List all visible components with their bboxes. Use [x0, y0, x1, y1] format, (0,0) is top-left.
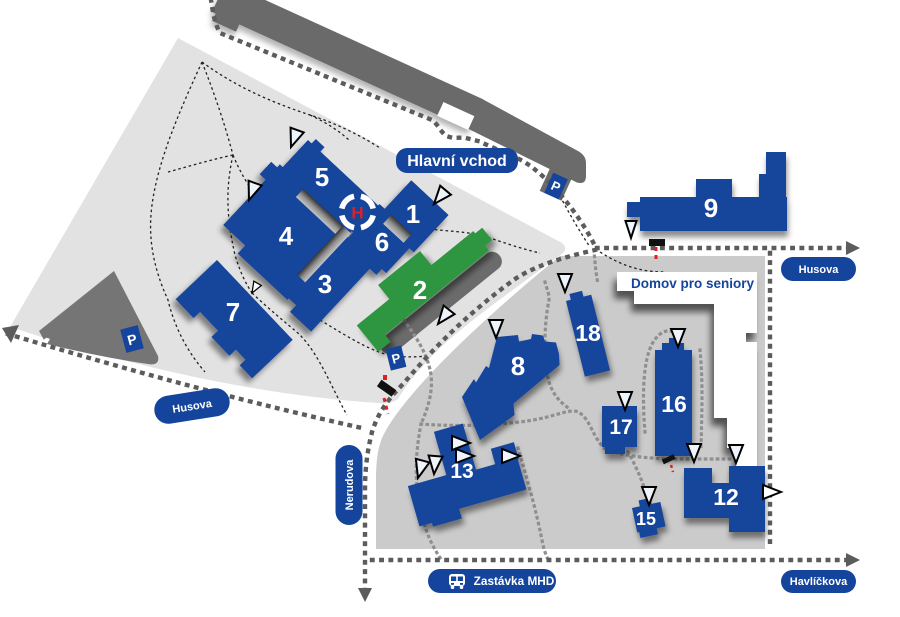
svg-text:13: 13 [450, 460, 473, 483]
svg-text:Zastávka MHD: Zastávka MHD [474, 574, 555, 588]
svg-text:12: 12 [713, 484, 739, 510]
svg-text:9: 9 [704, 193, 718, 223]
svg-text:17: 17 [609, 416, 632, 439]
svg-text:Domov pro seniory: Domov pro seniory [631, 276, 755, 291]
svg-text:1: 1 [406, 199, 420, 229]
svg-text:15: 15 [636, 509, 656, 529]
svg-text:Havlíčkova: Havlíčkova [790, 576, 848, 588]
svg-text:H: H [351, 204, 363, 223]
svg-text:5: 5 [315, 162, 329, 192]
svg-text:Nerudova: Nerudova [344, 459, 356, 511]
svg-text:8: 8 [511, 351, 525, 381]
svg-text:7: 7 [226, 297, 240, 327]
svg-text:16: 16 [661, 391, 687, 417]
svg-text:18: 18 [575, 320, 601, 346]
svg-text:6: 6 [375, 227, 389, 257]
svg-text:Hlavní vchod: Hlavní vchod [407, 153, 507, 170]
svg-text:2: 2 [413, 275, 427, 305]
svg-text:3: 3 [318, 269, 332, 299]
svg-text:4: 4 [279, 221, 294, 251]
svg-text:Husova: Husova [799, 264, 840, 276]
